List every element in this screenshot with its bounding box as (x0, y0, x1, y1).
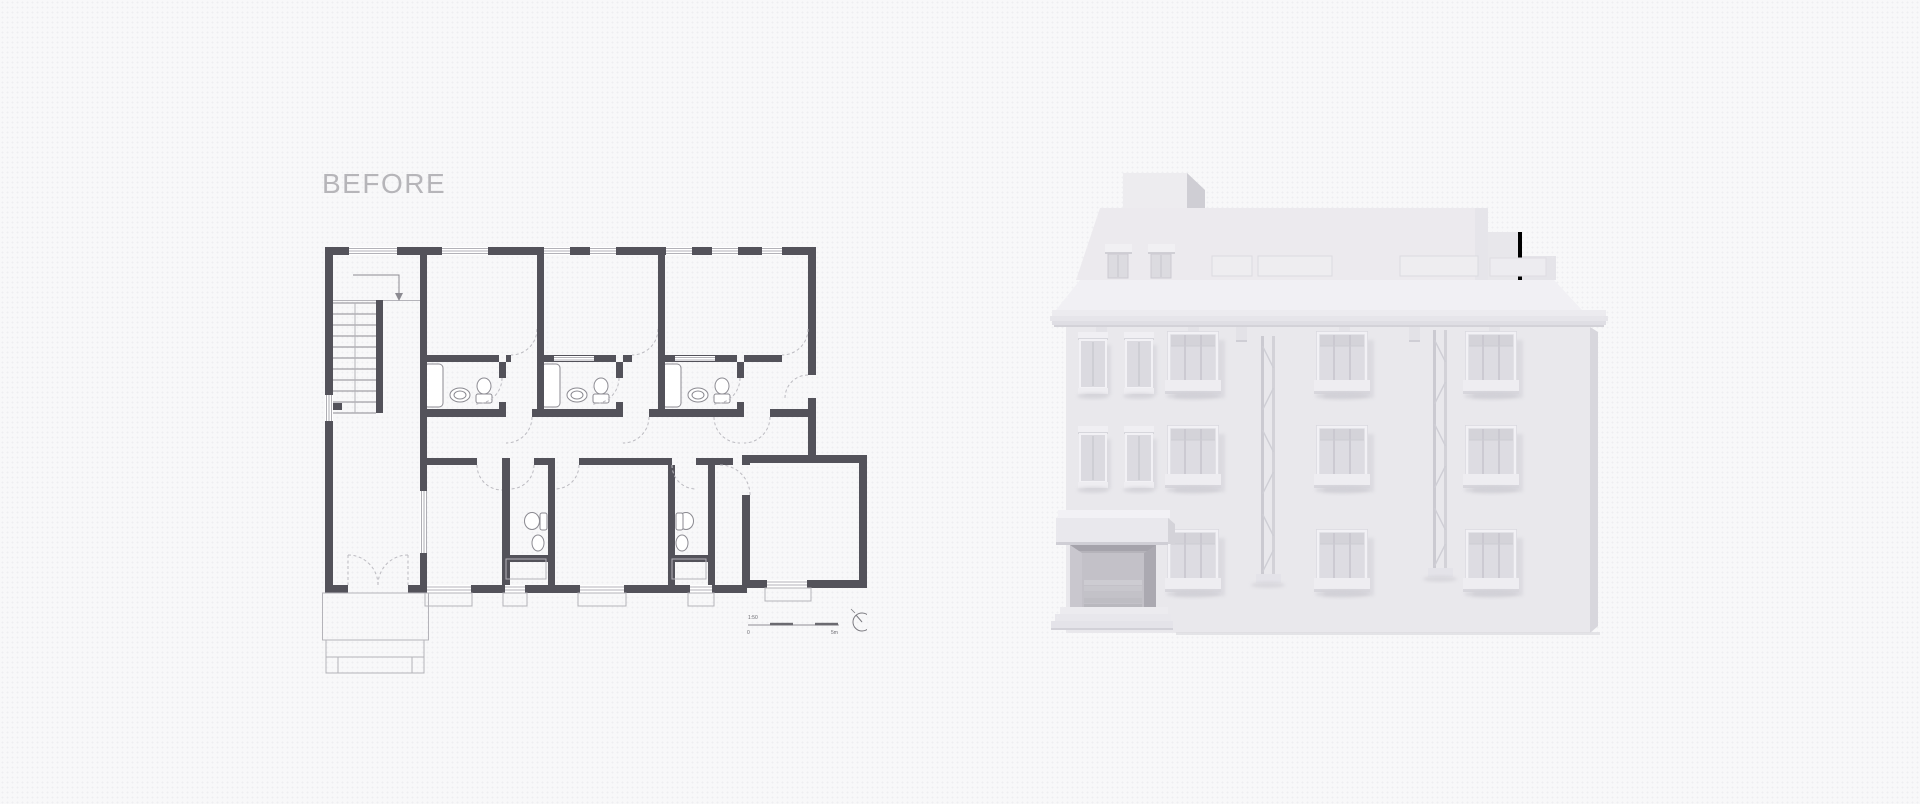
room-door-arc (477, 465, 502, 490)
small-window (1123, 332, 1157, 399)
attic-window (1148, 244, 1175, 278)
scale-bar: 1:50 0 5m (747, 615, 839, 636)
bathroom-door-arc (672, 465, 696, 489)
attic-panel (1258, 256, 1332, 276)
sink (676, 535, 688, 551)
corridor-door-arc (506, 417, 532, 443)
upper-unit (662, 329, 808, 443)
corridor-door-arc (744, 417, 770, 443)
small-window (1077, 332, 1111, 399)
toilet (525, 513, 540, 530)
stair-hall-door-arc (714, 417, 740, 443)
entrance-steps (1051, 607, 1173, 630)
balcony-window (1314, 529, 1374, 598)
scale-zero-label: 0 (747, 630, 750, 636)
room-door-arc (555, 465, 579, 489)
scale-ratio-label: 1:50 (748, 615, 758, 621)
entrance-porch (323, 593, 429, 673)
north-arrow-icon (851, 609, 867, 631)
room-door-arc (720, 465, 750, 495)
sink (450, 388, 470, 402)
attic-panel (1212, 256, 1252, 276)
lower-rooms (420, 455, 867, 593)
sink (532, 535, 544, 551)
toilet (594, 378, 608, 394)
entrance-double-door (348, 555, 408, 585)
upper-unit (424, 329, 537, 443)
room-door-arc (782, 329, 808, 355)
toilet (715, 378, 729, 394)
toilet (477, 378, 491, 394)
small-window (1077, 426, 1111, 493)
balcony-window (1463, 529, 1523, 598)
attic-panel (1490, 258, 1546, 276)
attic-panel (1400, 256, 1478, 276)
entrance-canopy (1058, 510, 1170, 518)
room-door-arc (511, 329, 537, 355)
building-render (1050, 168, 1610, 648)
roof-bulkhead (1123, 173, 1205, 211)
balcony-window (1463, 425, 1523, 494)
scale-end-label: 5m (831, 630, 838, 636)
balcony-window (1463, 331, 1523, 400)
balcony-window (1314, 425, 1374, 494)
sink (567, 388, 587, 402)
cornice (1050, 280, 1608, 327)
sink (688, 388, 708, 402)
attic-window (1105, 244, 1132, 278)
balcony-window (1165, 331, 1225, 400)
bathroom-door-arc (510, 465, 534, 489)
small-window (1123, 426, 1157, 493)
corridor-door-arc (623, 417, 649, 443)
presentation-board: BEFORE (0, 0, 1920, 804)
balcony-window (1314, 331, 1374, 400)
floor-plan: 1:50 0 5m (322, 243, 867, 683)
balcony-window (1165, 425, 1225, 494)
room-door-arc (632, 329, 658, 355)
floor-plan-svg: 1:50 0 5m (322, 243, 867, 683)
unit3-entry-arc (785, 375, 808, 398)
ground-shadow (1176, 632, 1600, 635)
interior-steps (1084, 580, 1142, 607)
stair-direction-arrow (353, 275, 399, 295)
building-render-svg (1050, 168, 1610, 648)
upper-unit (541, 329, 658, 443)
before-label: BEFORE (322, 168, 446, 200)
attic-story (1076, 208, 1556, 280)
